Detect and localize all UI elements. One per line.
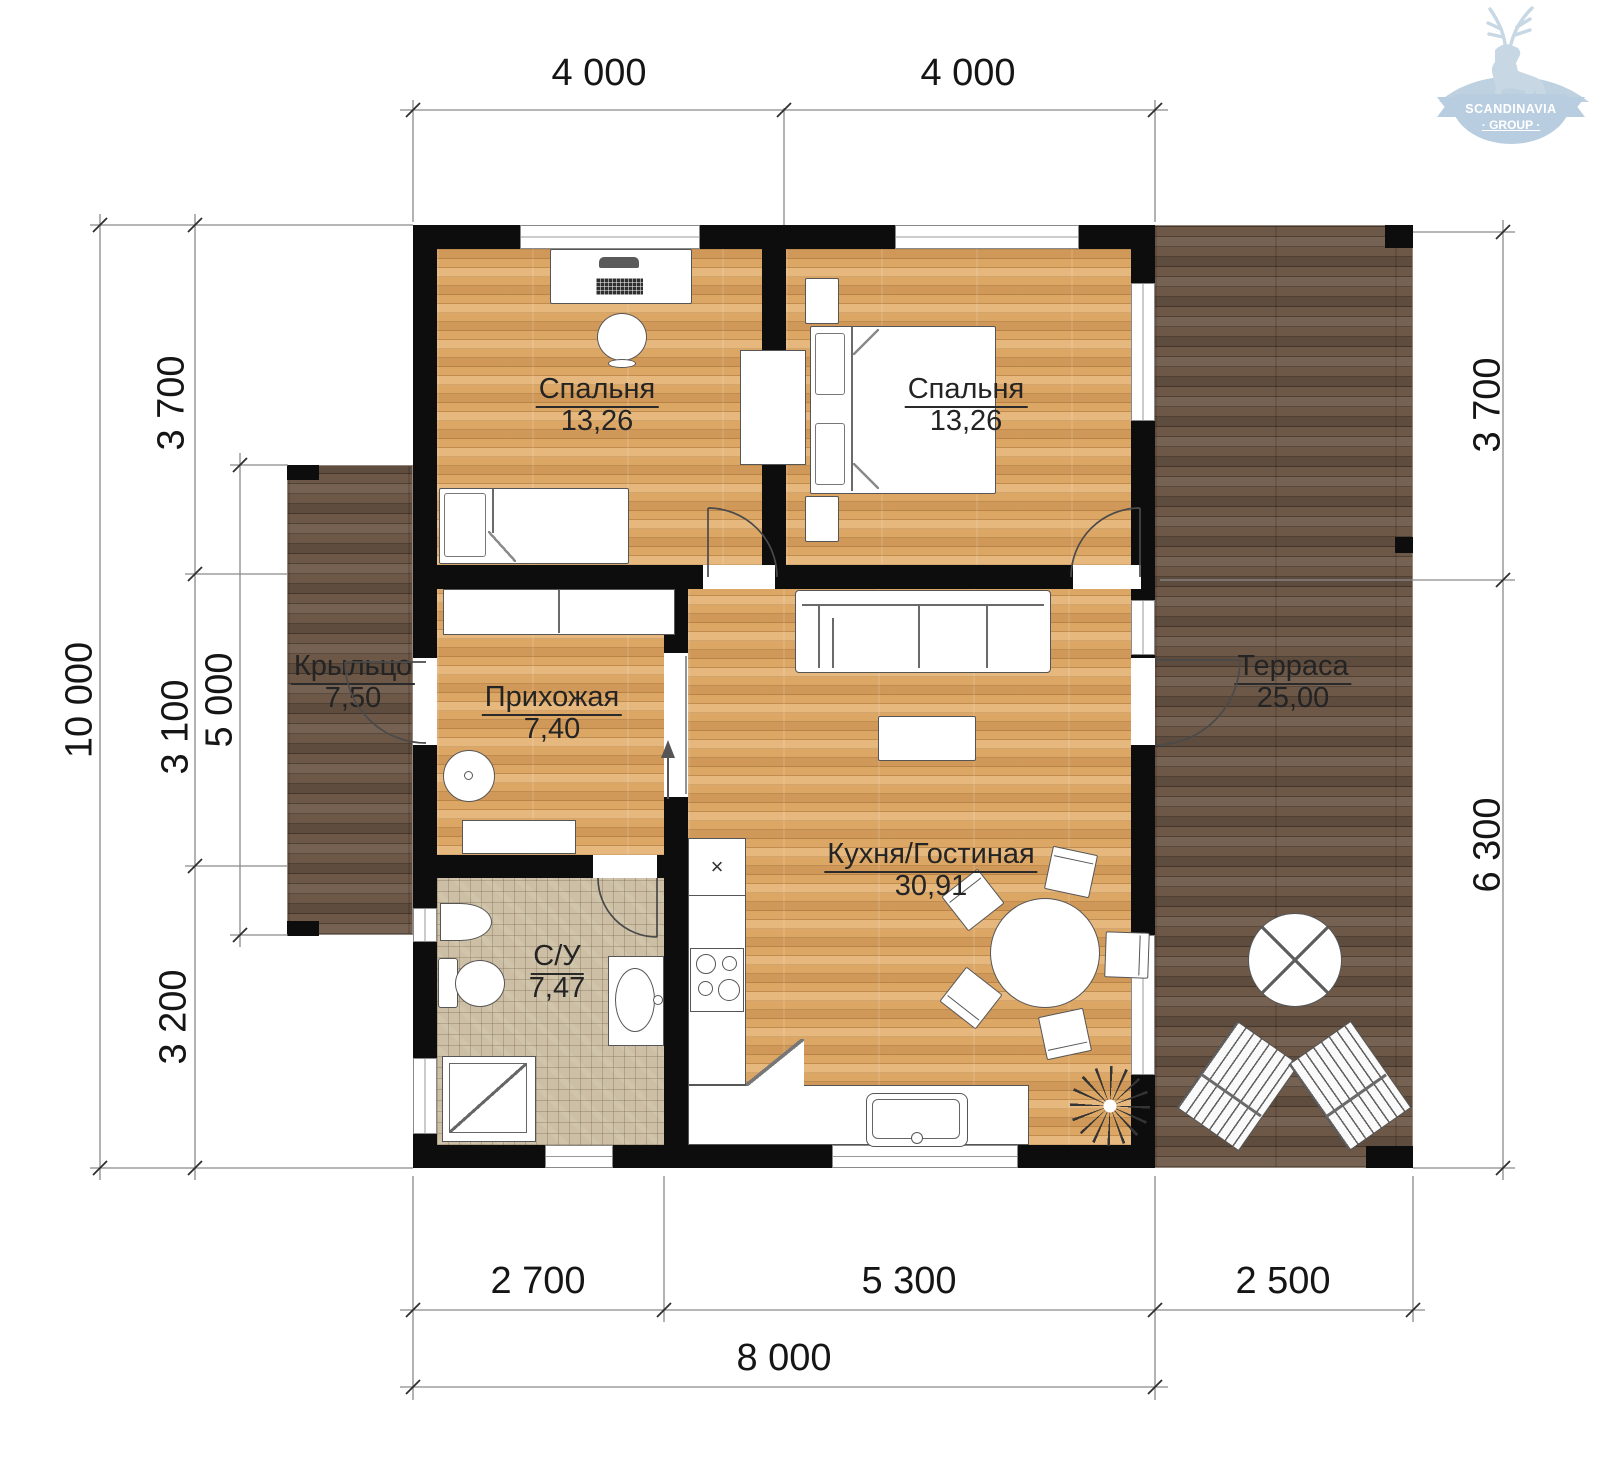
wall-bedrooms-south xyxy=(437,565,1131,589)
sofa-armrest-line xyxy=(818,604,820,668)
sofa xyxy=(795,590,1051,673)
room-name: Терраса xyxy=(1234,650,1351,685)
hallway-label: Прихожая 7,40 xyxy=(482,681,622,746)
kitchen-sink xyxy=(866,1093,968,1147)
dim-left-inner: 5 000 xyxy=(199,652,242,747)
burner xyxy=(696,954,716,974)
room-area: 13,26 xyxy=(905,405,1028,437)
shower-tray xyxy=(449,1063,527,1133)
sofa-back-line xyxy=(802,604,1044,606)
dining-chair xyxy=(1044,846,1098,899)
bedroom1-label: Спальня 13,26 xyxy=(536,373,659,438)
room-name: Прихожая xyxy=(482,681,622,716)
kitchen-counter-south xyxy=(688,1085,1029,1145)
hall-stool xyxy=(443,750,495,802)
room-name: Кухня/Гостиная xyxy=(824,838,1037,873)
dining-chair xyxy=(1104,931,1150,979)
dim-bottom-1: 2 700 xyxy=(490,1260,585,1303)
dining-chair xyxy=(1038,1008,1092,1061)
room-area: 25,00 xyxy=(1234,682,1351,714)
dim-top-2: 4 000 xyxy=(920,52,1015,95)
desk-chair xyxy=(597,313,647,361)
entrance-door-opening xyxy=(413,658,437,745)
bedroom2-east-window xyxy=(1131,283,1155,421)
logo: SCANDINAVIA · GROUP · xyxy=(1425,2,1597,152)
blanket-line xyxy=(492,489,494,533)
room-area: 30,91 xyxy=(824,870,1037,902)
bedroom1-window xyxy=(520,225,700,249)
burner xyxy=(698,981,713,996)
dim-left-1: 3 700 xyxy=(151,355,194,450)
porch-post-bottom xyxy=(287,921,319,936)
bed-pillow xyxy=(815,333,845,395)
logo-banner: SCANDINAVIA · GROUP · xyxy=(1451,94,1571,144)
wardrobe-divider xyxy=(558,590,560,633)
room-area: 13,26 xyxy=(536,405,659,437)
stove xyxy=(690,948,744,1012)
terrace-door-opening xyxy=(1131,658,1155,745)
logo-ribbon-left xyxy=(1437,97,1457,117)
desk-chair-base xyxy=(608,359,636,368)
dim-bottom-total: 8 000 xyxy=(736,1337,831,1380)
deer-icon xyxy=(1425,2,1597,104)
logo-line1: SCANDINAVIA xyxy=(1451,102,1571,116)
room-area: 7,40 xyxy=(482,713,622,745)
burner xyxy=(718,979,740,1001)
dim-bottom-3: 2 500 xyxy=(1235,1260,1330,1303)
wash-basin xyxy=(615,968,655,1032)
floor-plan: × Спальня 13,26 Спальня 13,2 xyxy=(0,0,1600,1473)
dim-left-2: 3 100 xyxy=(155,679,198,774)
bedroom2-door-opening xyxy=(1073,565,1141,589)
porch-label: Крыльцо 7,50 xyxy=(291,650,415,715)
living-east-window-a xyxy=(1131,600,1155,655)
sofa-armrest-line xyxy=(832,618,834,668)
hall-bench xyxy=(462,820,576,854)
porch-post-top xyxy=(287,465,319,480)
room-area: 7,50 xyxy=(291,682,415,714)
chair-back xyxy=(1138,935,1146,975)
terrace-post-mid xyxy=(1395,537,1413,553)
desk xyxy=(550,249,692,304)
dim-left-3: 3 200 xyxy=(153,969,196,1064)
terrace-post-bottom xyxy=(1366,1146,1413,1168)
fridge-x-symbol: × xyxy=(711,854,724,880)
single-bed xyxy=(439,488,629,564)
dim-right-1: 3 700 xyxy=(1467,357,1510,452)
sofa-seat-divider xyxy=(986,604,988,668)
terrace-label: Терраса 25,00 xyxy=(1234,650,1351,715)
vanity xyxy=(608,956,664,1046)
dim-top-1: 4 000 xyxy=(551,52,646,95)
nightstand-2 xyxy=(805,496,839,542)
bed-pillow xyxy=(815,423,845,485)
sofa-seat-divider xyxy=(918,604,920,668)
room-name: Крыльцо xyxy=(291,650,415,685)
burner xyxy=(722,956,737,971)
bathroom-south-window xyxy=(545,1145,613,1168)
bedroom2-window xyxy=(895,225,1079,249)
bed-pillow xyxy=(444,493,486,557)
kitchen-living-label: Кухня/Гостиная 30,91 xyxy=(824,838,1037,903)
room-name: Спальня xyxy=(536,373,659,408)
keyboard-icon xyxy=(596,278,643,295)
monitor-icon xyxy=(599,257,639,268)
toilet-bowl xyxy=(455,960,505,1007)
kitchen-counter-chamfer xyxy=(746,1039,804,1086)
terrace-post-top xyxy=(1385,225,1413,248)
nightstand-1 xyxy=(805,278,839,324)
bathroom-west-window-a xyxy=(413,908,437,942)
blanket-fold xyxy=(488,531,516,562)
room-area: 7,47 xyxy=(529,972,585,1004)
built-in-closet xyxy=(740,350,806,465)
dim-right-2: 6 300 xyxy=(1467,797,1510,892)
shower xyxy=(442,1056,536,1142)
kitchen-window xyxy=(832,1145,1018,1168)
bathroom-label: С/У 7,47 xyxy=(529,940,585,1005)
bedroom2-label: Спальня 13,26 xyxy=(905,373,1028,438)
bedroom1-door-opening xyxy=(703,565,775,589)
blanket-fold xyxy=(853,463,879,489)
stool-center xyxy=(464,771,473,780)
fridge: × xyxy=(688,838,746,896)
blanket-fold xyxy=(853,329,879,355)
hall-wardrobe xyxy=(443,589,675,635)
hall-living-opening xyxy=(664,653,688,797)
wall-bottom xyxy=(413,1145,1155,1168)
logo-ribbon-right xyxy=(1565,97,1585,117)
dining-table xyxy=(990,898,1100,1008)
logo-line2: · GROUP · xyxy=(1451,118,1571,132)
terrace-table xyxy=(1248,913,1342,1007)
bathroom-door-opening xyxy=(593,855,657,878)
dim-left-total: 10 000 xyxy=(59,642,102,758)
bathroom-west-window-b xyxy=(413,1058,437,1134)
coffee-table xyxy=(878,716,976,761)
faucet-icon xyxy=(911,1132,923,1144)
lounger-bar xyxy=(1201,1073,1262,1117)
dim-bottom-2: 5 300 xyxy=(861,1260,956,1303)
faucet-icon xyxy=(653,995,663,1005)
room-name: Спальня xyxy=(905,373,1028,408)
room-name: С/У xyxy=(530,940,583,975)
plant-icon xyxy=(1070,1066,1150,1146)
lounger-bar xyxy=(1325,1074,1386,1118)
